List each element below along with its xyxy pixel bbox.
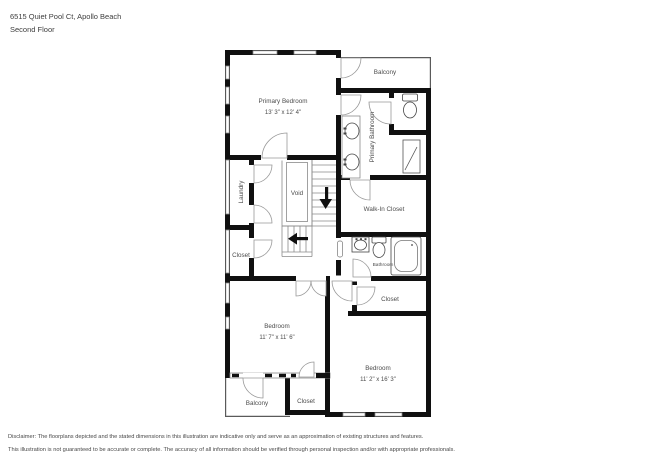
toilet-icon: [403, 94, 418, 118]
door-bedroom-left-b: [311, 281, 326, 296]
door-laundry-upper: [254, 165, 272, 183]
stair-arrow-left-icon: [288, 233, 308, 245]
disclaimer-line-2: This illustration is not guaranteed to b…: [8, 444, 455, 457]
walls: [225, 50, 431, 417]
door-bathroom: [353, 259, 371, 277]
door-primary-bedroom: [262, 133, 287, 158]
label-closet-left: Closet: [232, 252, 250, 259]
label-bedroom-right: Bedroom: [365, 365, 391, 372]
label-laundry: Laundry: [238, 180, 245, 204]
sink-icon: [352, 237, 369, 252]
sink-icon: [345, 154, 359, 170]
dims-bedroom-left: 11' 7" x 11' 6": [259, 335, 294, 341]
label-bathroom: Bathroom: [373, 262, 394, 268]
door-closet-left: [254, 240, 272, 258]
toilet-icon: [372, 237, 386, 258]
door-balcony-top: [341, 58, 361, 78]
door-swings: [243, 58, 391, 398]
stair-arrow-down-icon: [320, 187, 333, 209]
door-bedroom-right: [332, 281, 352, 301]
label-closet-right: Closet: [381, 296, 399, 303]
dims-bedroom-right: 11' 2" x 16' 3": [360, 377, 396, 383]
label-primary-bathroom: Primary Bathroom: [369, 112, 376, 163]
shower-icon: [403, 140, 420, 173]
door-walk-in-closet: [350, 180, 370, 200]
disclaimer: Disclaimer: The floorplans depicted and …: [8, 431, 455, 456]
bathtub-icon: [391, 237, 421, 275]
door-balcony-bottom: [243, 378, 263, 398]
dims-primary-bedroom: 13' 3" x 12' 4": [265, 110, 301, 116]
label-balcony-top: Balcony: [374, 69, 397, 76]
door-bedroom-left-a: [296, 281, 311, 296]
label-bedroom-left: Bedroom: [264, 323, 290, 330]
door-laundry-lower: [254, 205, 272, 223]
label-balcony-bottom: Balcony: [246, 400, 269, 407]
door-closet-right: [357, 287, 375, 305]
disclaimer-line-1: Disclaimer: The floorplans depicted and …: [8, 431, 455, 444]
door-primary-bathroom: [341, 95, 361, 115]
stairwell: [282, 158, 336, 257]
label-closet-bottom: Closet: [297, 398, 315, 405]
balcony-window-wall: [230, 373, 330, 378]
linen-door-leaf: [338, 241, 343, 257]
label-primary-bedroom: Primary Bedroom: [259, 98, 308, 105]
vanity: [342, 116, 360, 178]
label-walk-in-closet: Walk-In Closet: [364, 206, 405, 213]
label-void: Void: [291, 190, 304, 197]
sink-icon: [345, 123, 359, 139]
floorplan: Primary Bedroom 13' 3" x 12' 4" Balcony …: [0, 0, 650, 460]
door-closet-bottom: [299, 362, 314, 377]
